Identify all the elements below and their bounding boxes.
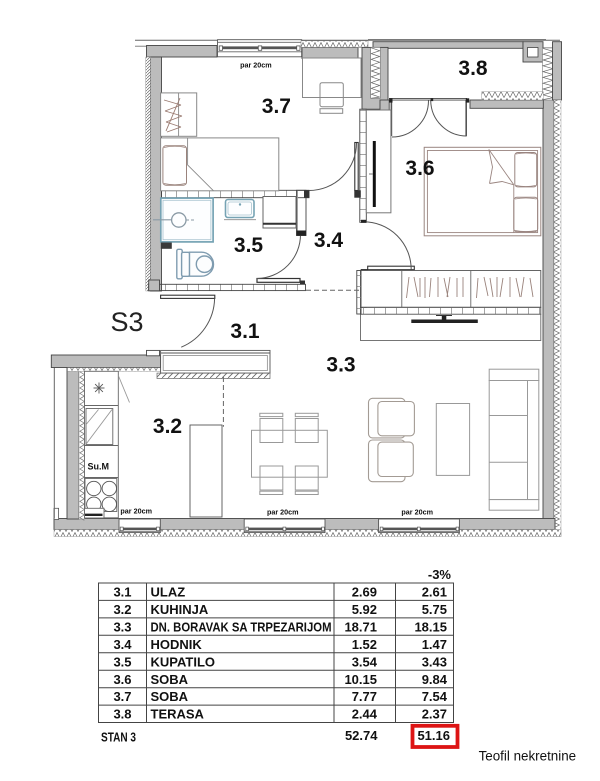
svg-text:3.8: 3.8: [458, 57, 488, 80]
svg-text:par 20cm: par 20cm: [267, 507, 299, 516]
svg-text:3.3: 3.3: [113, 619, 131, 634]
svg-text:18.15: 18.15: [414, 619, 447, 634]
svg-text:Teofil nekretnine: Teofil nekretnine: [479, 749, 577, 764]
svg-text:3.2: 3.2: [153, 415, 182, 438]
svg-text:ULAZ: ULAZ: [151, 585, 186, 600]
svg-text:3.5: 3.5: [234, 234, 264, 257]
svg-text:Su.M: Su.M: [88, 462, 110, 472]
svg-text:3.4: 3.4: [113, 637, 132, 652]
svg-text:DN. BORAVAK SA TRPEZARIJOM: DN. BORAVAK SA TRPEZARIJOM: [151, 619, 332, 634]
svg-text:S3: S3: [110, 307, 143, 337]
svg-text:2.44: 2.44: [352, 707, 378, 722]
svg-text:7.54: 7.54: [422, 689, 448, 704]
svg-text:par 20cm: par 20cm: [401, 507, 433, 516]
svg-text:3.54: 3.54: [352, 654, 378, 669]
svg-text:3.6: 3.6: [405, 157, 434, 180]
svg-text:par 20cm: par 20cm: [120, 507, 152, 516]
svg-text:3.5: 3.5: [113, 654, 131, 669]
svg-text:3.43: 3.43: [422, 654, 447, 669]
svg-text:10.15: 10.15: [344, 672, 377, 687]
svg-text:2.69: 2.69: [352, 585, 377, 600]
svg-text:SOBA: SOBA: [151, 672, 189, 687]
svg-text:51.16: 51.16: [417, 728, 450, 743]
svg-text:3.7: 3.7: [113, 689, 131, 704]
svg-text:3.2: 3.2: [113, 602, 131, 617]
svg-text:par 20cm: par 20cm: [240, 61, 272, 70]
svg-text:KUHINJA: KUHINJA: [151, 602, 209, 617]
svg-text:5.75: 5.75: [422, 602, 447, 617]
svg-text:5.92: 5.92: [352, 602, 377, 617]
svg-text:-3%: -3%: [428, 567, 452, 582]
svg-text:3.4: 3.4: [314, 229, 344, 252]
svg-text:HODNIK: HODNIK: [151, 637, 203, 652]
svg-text:52.74: 52.74: [345, 728, 378, 743]
svg-text:SOBA: SOBA: [151, 689, 189, 704]
svg-text:3.1: 3.1: [230, 320, 260, 343]
svg-text:2.37: 2.37: [422, 707, 447, 722]
svg-text:3.3: 3.3: [326, 354, 355, 377]
svg-text:3.1: 3.1: [113, 585, 131, 600]
svg-text:STAN 3: STAN 3: [101, 730, 136, 745]
svg-text:7.77: 7.77: [352, 689, 377, 704]
svg-text:1.47: 1.47: [422, 637, 447, 652]
svg-text:1.52: 1.52: [352, 637, 377, 652]
svg-text:18.71: 18.71: [344, 619, 377, 634]
svg-text:TERASA: TERASA: [151, 707, 205, 722]
svg-text:2.61: 2.61: [422, 585, 447, 600]
svg-text:3.6: 3.6: [113, 672, 131, 687]
svg-text:9.84: 9.84: [422, 672, 448, 687]
svg-text:KUPATILO: KUPATILO: [151, 654, 216, 669]
svg-text:3.7: 3.7: [262, 95, 291, 118]
svg-text:3.8: 3.8: [113, 707, 131, 722]
